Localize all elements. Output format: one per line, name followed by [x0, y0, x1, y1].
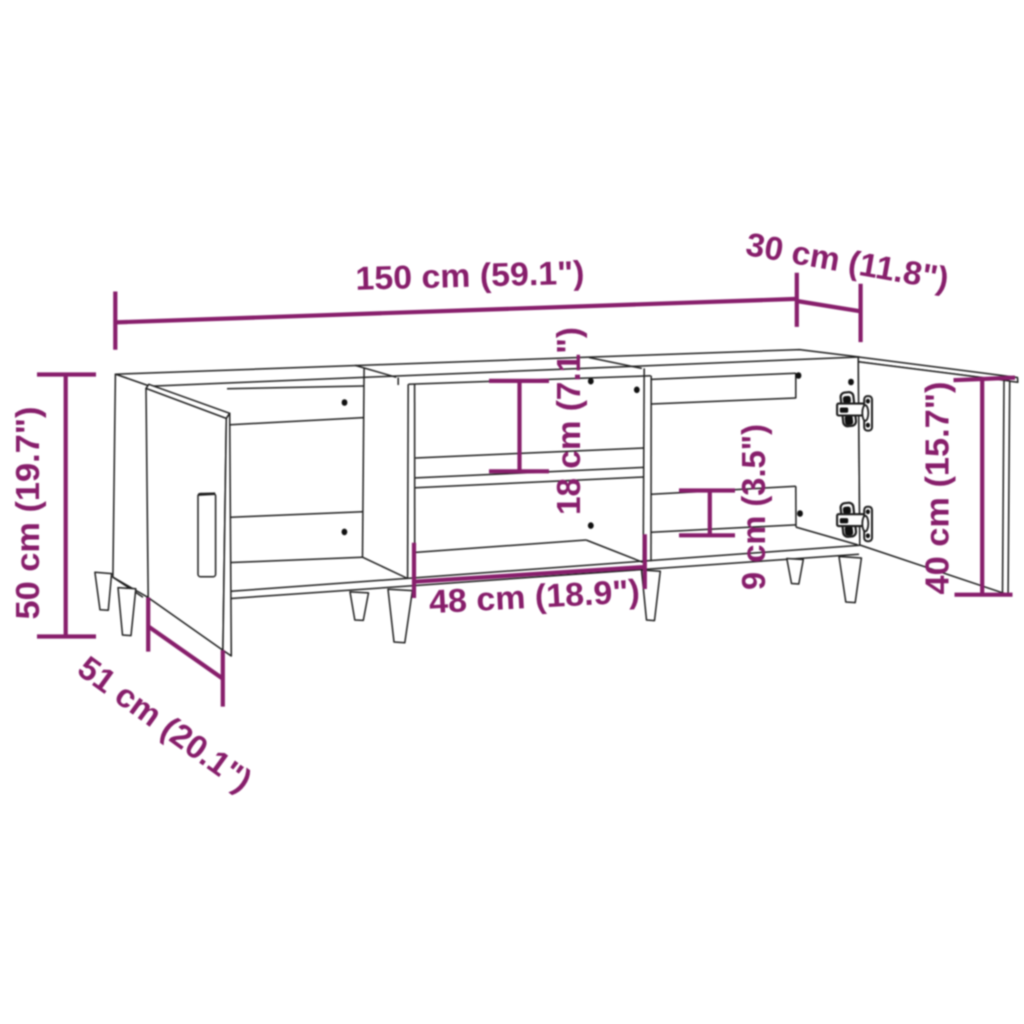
svg-text:9 cm (3.5"): 9 cm (3.5"): [735, 424, 772, 590]
svg-text:50 cm (19.7"): 50 cm (19.7"): [9, 407, 46, 620]
svg-text:40 cm (15.7"): 40 cm (15.7"): [919, 382, 956, 595]
svg-text:150 cm (59.1"): 150 cm (59.1"): [355, 254, 585, 297]
svg-text:18 cm (7.1"): 18 cm (7.1"): [550, 327, 587, 515]
